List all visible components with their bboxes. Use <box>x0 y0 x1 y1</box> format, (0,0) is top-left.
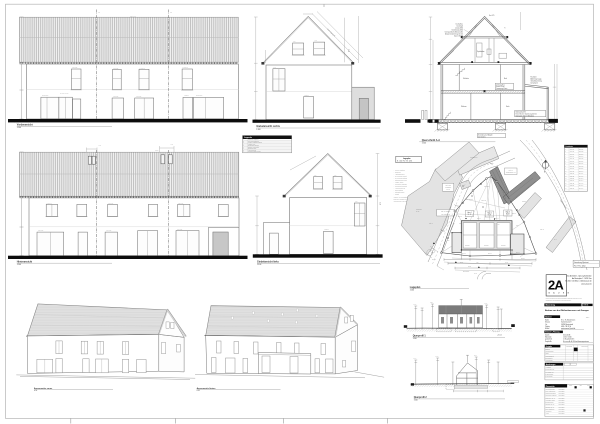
svg-text:1:100: 1:100 <box>256 129 260 131</box>
svg-text:Name: Name <box>545 320 549 322</box>
svg-text:05.11.2018: 05.11.2018 <box>559 400 565 402</box>
svg-text:1:100: 1:100 <box>17 127 21 129</box>
svg-text:55425.36: 55425.36 <box>579 161 584 163</box>
svg-text:Bad: Bad <box>504 78 507 80</box>
svg-text:Axonometrie vorne: Axonometrie vorne <box>34 387 53 390</box>
svg-text:1:100: 1:100 <box>422 143 426 145</box>
svg-text:Wohnen: Wohnen <box>461 106 467 108</box>
svg-text:211.62: 211.62 <box>432 259 436 261</box>
svg-text:05.11.2018: 05.11.2018 <box>563 334 570 336</box>
svg-text:2.01x2.26: 2.01x2.26 <box>177 229 183 231</box>
svg-text:3.00: 3.00 <box>447 240 450 242</box>
svg-text:Nr. 12: Nr. 12 <box>446 189 450 191</box>
svg-text:05.11.2018: 05.11.2018 <box>559 395 565 397</box>
svg-text:Vorderansicht: Vorderansicht <box>17 124 33 127</box>
svg-text:1:200: 1:200 <box>414 400 418 402</box>
svg-text:55436.47: 55436.47 <box>579 188 584 190</box>
svg-text:Dampfsperre: Dampfsperre <box>531 83 539 85</box>
svg-text:Telefon: Telefon <box>545 326 550 328</box>
svg-text:C Hoehen erg.: C Hoehen erg. <box>546 371 555 373</box>
svg-text:+9.30: +9.30 <box>98 145 101 147</box>
svg-text:211.70: 211.70 <box>488 253 492 255</box>
svg-text:Neubau von drei Reihenhaeusern: Neubau von drei Reihenhaeusern mit Garag… <box>545 309 590 312</box>
svg-text:2.75: 2.75 <box>516 225 519 227</box>
svg-text:B A U E N: B A U E N <box>549 292 571 295</box>
svg-text:0.88x2.13: 0.88x2.13 <box>113 67 119 69</box>
svg-text:Diele: Diele <box>506 106 510 108</box>
svg-text:0.76: 0.76 <box>314 174 317 176</box>
svg-text:28.12: 28.12 <box>468 266 471 268</box>
svg-text:1:200: 1:200 <box>410 289 414 291</box>
svg-text:10.95: 10.95 <box>505 262 508 264</box>
svg-text:212.8: 212.8 <box>436 356 439 358</box>
svg-text:Nr. 8a: Nr. 8a <box>416 211 420 213</box>
svg-text:212.02: 212.02 <box>512 213 516 215</box>
svg-text:Kamin: Kamin <box>155 150 159 152</box>
svg-text:Nr. 6: Nr. 6 <box>554 239 557 241</box>
svg-text:Wohnhaus: Wohnhaus <box>445 187 451 189</box>
svg-text:1.01x2.13: 1.01x2.13 <box>72 67 78 69</box>
svg-text:211.98: 211.98 <box>477 218 481 220</box>
svg-text:OK FFB +2.875: OK FFB +2.875 <box>60 93 69 95</box>
svg-text:www.2a-bauen.de: www.2a-bauen.de <box>581 283 592 285</box>
svg-text:1:100 / 1:200: 1:100 / 1:200 <box>563 337 572 339</box>
svg-text:8.75: 8.75 <box>380 202 382 205</box>
svg-text:WD: WD <box>170 12 172 14</box>
svg-text:E Gelaender: E Gelaender <box>546 376 554 378</box>
svg-text:211.75: 211.75 <box>462 253 466 255</box>
svg-text:E-Mail: E-Mail <box>545 328 550 330</box>
svg-text:05.11.2018: 05.11.2018 <box>559 411 565 413</box>
svg-text:Legende: Legende <box>244 137 252 139</box>
svg-text:Daemmung 40 mm: Daemmung 40 mm <box>496 88 507 90</box>
svg-text:M. 1:200 / Flur 7 Nr. 123/4: M. 1:200 / Flur 7 Nr. 123/4 <box>397 160 412 162</box>
svg-text:0.76: 0.76 <box>334 174 337 176</box>
svg-text:Vermesser OeBVI: Vermesser OeBVI <box>546 400 556 402</box>
svg-text:Terrasse: Terrasse <box>484 245 489 247</box>
svg-text:35756.27: 35756.27 <box>570 188 575 190</box>
svg-text:55421.32: 55421.32 <box>579 151 584 153</box>
svg-text:2A: 2A <box>548 278 564 293</box>
svg-text:55431.42: 55431.42 <box>579 175 584 177</box>
svg-text:211.66: 211.66 <box>516 252 520 254</box>
svg-text:0.88x1.01: 0.88x1.01 <box>108 202 114 204</box>
svg-text:0.88x1.01: 0.88x1.01 <box>47 202 53 204</box>
svg-text:Genehmigung: Genehmigung <box>546 351 554 353</box>
svg-text:+212.40: +212.40 <box>497 334 502 336</box>
svg-text:1.01: 1.01 <box>274 67 277 69</box>
svg-text:1.01x2.13: 1.01x2.13 <box>106 230 112 232</box>
svg-text:05.11.2018: 05.11.2018 <box>559 393 565 395</box>
svg-text:1.01x2.13: 1.01x2.13 <box>140 67 146 69</box>
svg-text:Haus 3: Haus 3 <box>506 212 510 214</box>
svg-text:Garage: Garage <box>522 201 526 203</box>
svg-text:35742.13: 35742.13 <box>570 153 575 155</box>
svg-text:18.40: 18.40 <box>474 273 477 275</box>
svg-text:Querprofil 2: Querprofil 2 <box>414 397 428 399</box>
svg-text:Flachdach:: Flachdach: <box>531 77 538 79</box>
svg-text:o. M.: o. M. <box>34 390 38 392</box>
svg-text:212.9: 212.9 <box>485 303 488 305</box>
svg-text:Nr. 18: Nr. 18 <box>506 214 510 216</box>
svg-text:Bodenaufbau EG:: Bodenaufbau EG: <box>516 112 527 114</box>
svg-text:1.26x1.01: 1.26x1.01 <box>178 202 184 204</box>
svg-text:211.58: 211.58 <box>521 258 525 260</box>
svg-text:55435.46: 55435.46 <box>579 185 584 187</box>
svg-text:1.01x2.13: 1.01x2.13 <box>183 67 189 69</box>
svg-text:212.6: 212.6 <box>414 304 417 306</box>
svg-text:05.11.2018: 05.11.2018 <box>559 402 565 404</box>
svg-text:Giebelansicht links: Giebelansicht links <box>257 261 279 264</box>
svg-text:Schlafen: Schlafen <box>463 78 469 80</box>
svg-text:1.210 m2: 1.210 m2 <box>481 200 486 202</box>
svg-text:2.26x2.13: 2.26x2.13 <box>38 230 44 232</box>
svg-text:211.90: 211.90 <box>495 218 499 220</box>
svg-text:Haus 1: Haus 1 <box>467 212 471 214</box>
svg-text:55426.37: 55426.37 <box>579 163 584 165</box>
svg-text:Querschnitt A-A: Querschnitt A-A <box>422 139 441 142</box>
svg-text:Terrasse: Terrasse <box>465 245 470 247</box>
svg-text:Dachaufbau:: Dachaufbau: <box>456 24 464 26</box>
svg-text:05.11.2018: 05.11.2018 <box>559 388 565 390</box>
svg-text:35752.23: 35752.23 <box>570 178 575 180</box>
svg-text:5.36: 5.36 <box>459 223 462 225</box>
svg-text:PDF: PDF <box>580 385 583 387</box>
svg-text:212.4: 212.4 <box>414 358 417 360</box>
svg-text:05.11.2018: 05.11.2018 <box>559 391 565 393</box>
svg-text:Axonometrie hinten: Axonometrie hinten <box>197 387 217 390</box>
svg-text:Hoehenbezug: NHN 2016: Hoehenbezug: NHN 2016 <box>394 200 408 202</box>
svg-text:1.88x2.13: 1.88x2.13 <box>136 96 142 98</box>
svg-text:Wohnhaus Nr. 10: Wohnhaus Nr. 10 <box>506 172 516 174</box>
svg-text:55432.43: 55432.43 <box>579 178 584 180</box>
svg-text:Kamin: Kamin <box>82 152 86 154</box>
svg-text:05.11.2018: 05.11.2018 <box>559 397 565 399</box>
svg-text:Wohnhaus: Wohnhaus <box>416 209 422 211</box>
svg-text:1:200: 1:200 <box>413 338 417 340</box>
svg-text:Sparren 80/200: Sparren 80/200 <box>454 36 463 38</box>
svg-text:Giebelansicht rechts: Giebelansicht rechts <box>256 125 280 128</box>
svg-text:Tel. 0651 / 123 456-0 . info: Tel. 0651 / 123 456-0 . info@2a-bauen.de <box>565 280 592 282</box>
svg-text:05.11.2018: 05.11.2018 <box>559 413 565 415</box>
svg-text:35755.26: 35755.26 <box>570 185 575 187</box>
svg-text:Haus 2: Haus 2 <box>487 213 491 215</box>
svg-text:35746.17: 35746.17 <box>570 163 575 165</box>
svg-text:8.75: 8.75 <box>349 49 351 52</box>
svg-text:B Lageplan erg.: B Lageplan erg. <box>546 369 555 371</box>
svg-text:213.0: 213.0 <box>474 355 477 357</box>
svg-text:Gefaelledaemmung: Gefaelledaemmung <box>531 81 543 83</box>
svg-text:4.88: 4.88 <box>497 224 500 226</box>
svg-text:0651 / 98 76 54: 0651 / 98 76 54 <box>561 326 571 328</box>
svg-text:Lageplan: Lageplan <box>410 286 421 289</box>
svg-text:05.11.2018: 05.11.2018 <box>559 406 565 408</box>
svg-text:0.88: 0.88 <box>293 41 296 43</box>
svg-text:05.11.2018: 05.11.2018 <box>559 404 565 406</box>
svg-text:0.88: 0.88 <box>315 40 318 42</box>
svg-text:Lageplan: Lageplan <box>403 158 410 160</box>
svg-text:5.45: 5.45 <box>470 193 473 195</box>
svg-text:Bauherr: Bauherr <box>545 317 552 319</box>
svg-text:WD: WD <box>98 12 100 14</box>
svg-text:213.1: 213.1 <box>430 302 433 304</box>
svg-text:1.13x2.13: 1.13x2.13 <box>113 96 119 98</box>
svg-text:__ Baugrenze: __ Baugrenze <box>393 171 402 173</box>
svg-text:24.86: 24.86 <box>460 262 463 264</box>
svg-text:Hinteransicht: Hinteransicht <box>17 260 32 263</box>
svg-text:35751.22: 35751.22 <box>570 175 575 177</box>
svg-text:35741.12: 35741.12 <box>570 151 575 153</box>
svg-text:Dachziegel: Dachziegel <box>457 26 464 28</box>
svg-text:212.05: 212.05 <box>458 216 462 218</box>
svg-text:35745.16: 35745.16 <box>570 161 575 163</box>
svg-text:Bauantrag: Bauantrag <box>546 304 556 307</box>
svg-text:05.11.2018: 05.11.2018 <box>559 409 565 411</box>
svg-text:Deckenaufbau:: Deckenaufbau: <box>496 84 505 86</box>
svg-text:Querprofil 1: Querprofil 1 <box>413 336 427 338</box>
svg-text:9.82: 9.82 <box>476 262 479 264</box>
svg-text:1:100: 1:100 <box>257 264 261 266</box>
svg-text:55422.33: 55422.33 <box>579 153 584 155</box>
svg-text:0.88: 0.88 <box>355 201 358 203</box>
svg-text:Terrasse: Terrasse <box>501 245 506 247</box>
svg-text:Kanal DN 300: Kanal DN 300 <box>470 157 478 159</box>
svg-text:+9.30: +9.30 <box>170 144 173 146</box>
svg-text:o. M.: o. M. <box>197 390 201 392</box>
svg-text:1:100: 1:100 <box>17 264 21 266</box>
